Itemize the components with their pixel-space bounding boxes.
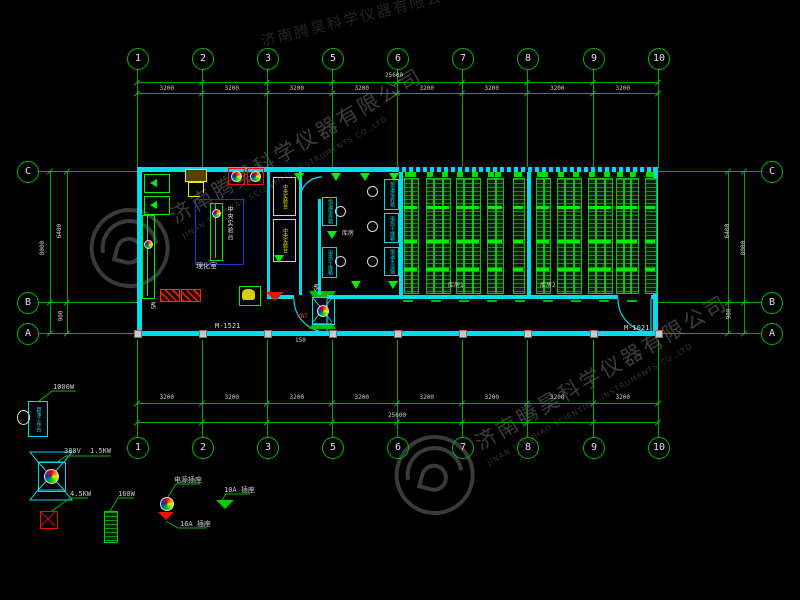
- column-marker: [590, 330, 598, 338]
- legend-label-power: 1.5KW: [90, 448, 111, 455]
- instrument-box: 恒温水浴锅: [384, 247, 399, 276]
- dim-text: 3200: [225, 395, 239, 401]
- rack-foot-icon: [488, 172, 494, 177]
- legend-16a-triangle-icon: [158, 512, 174, 520]
- light-cone-icon: [294, 173, 304, 181]
- yellow-sign: [185, 169, 207, 182]
- annotation-ws: WS: [149, 302, 155, 309]
- light-cone-icon: [389, 173, 399, 181]
- rack-divider: [426, 206, 449, 209]
- grid-column-bubble: 10: [648, 48, 670, 70]
- column-marker: [459, 330, 467, 338]
- grid-line-vertical: [137, 69, 138, 168]
- storage-rack: [588, 178, 596, 294]
- rack-divider: [645, 268, 655, 271]
- light-cone-icon: [331, 173, 341, 181]
- legend-ac-knob-icon: [17, 410, 30, 425]
- grid-row-bubble: C: [17, 161, 39, 183]
- grid-line-vertical: [397, 69, 398, 168]
- grid-column-bubble: 1: [127, 437, 149, 459]
- column-marker: [394, 330, 402, 338]
- dim-text: 6400: [57, 224, 63, 238]
- wall-interior-south: [651, 295, 653, 299]
- yellow-bench-label: 中央实验台: [282, 228, 287, 253]
- storage-rack: [574, 178, 582, 294]
- grid-line-vertical: [593, 69, 594, 168]
- rack-divider: [588, 206, 611, 209]
- rack-divider: [487, 240, 502, 243]
- green-cabinet: [144, 196, 170, 215]
- ceiling-light-icon: [367, 186, 378, 197]
- grid-column-bubble: 10: [648, 437, 670, 459]
- room-label-lab: 理化室: [196, 263, 217, 270]
- storage-rack: [443, 178, 451, 294]
- wall-interior-south: [327, 295, 618, 299]
- exhaust-fan-icon: [250, 171, 261, 182]
- grid-line-horizontal: [38, 171, 137, 172]
- grid-row-bubble: A: [17, 323, 39, 345]
- storage-rack: [456, 178, 464, 294]
- grid-line-vertical: [267, 69, 268, 168]
- grid-column-bubble: 3: [257, 48, 279, 70]
- door-label: M-1021: [624, 325, 649, 332]
- rack-foot-icon: [495, 172, 501, 177]
- dim-text: 3200: [420, 395, 434, 401]
- instrument-box-label: 电热干燥箱: [389, 216, 394, 241]
- annotation-xat: XAT: [297, 314, 308, 320]
- rack-divider: [513, 268, 523, 271]
- grid-line-vertical: [658, 69, 659, 168]
- rack-foot-icon: [573, 172, 579, 177]
- dim-text: 3200: [550, 86, 564, 92]
- room-label-storage2: 库房2: [540, 283, 556, 289]
- grid-line-horizontal: [658, 302, 761, 303]
- rack-divider: [536, 268, 549, 271]
- column-marker: [524, 330, 532, 338]
- rack-divider: [588, 268, 611, 271]
- column-marker: [134, 330, 142, 338]
- legend-label-rack: 160W: [118, 491, 135, 498]
- rack-foot-icon: [442, 172, 448, 177]
- grid-line-vertical: [202, 69, 203, 168]
- grid-line-horizontal: [658, 333, 761, 334]
- grid-row-bubble: B: [761, 292, 783, 314]
- dim-text: 3200: [160, 86, 174, 92]
- dim-text: 3200: [225, 86, 239, 92]
- yellow-bench-label: 中央实验台: [282, 184, 287, 209]
- instrument-box-label: 恒温培养箱: [389, 182, 394, 207]
- ceiling-light-icon: [335, 206, 346, 217]
- rack-foot-icon: [410, 172, 416, 177]
- grid-column-bubble: 8: [517, 48, 539, 70]
- storage-rack: [616, 178, 624, 294]
- storage-rack: [412, 178, 420, 294]
- dim-text: 900: [726, 309, 732, 320]
- legend-socket-icon: [160, 497, 174, 511]
- rack-divider: [404, 240, 417, 243]
- rack-divider: [536, 240, 549, 243]
- storage-rack: [496, 178, 505, 294]
- dim-text: 3200: [616, 86, 630, 92]
- storage-rack: [624, 178, 632, 294]
- rack-divider: [456, 206, 479, 209]
- legend-label-16a: 16A 插座: [180, 521, 211, 528]
- legend-label-ac: 1000W: [53, 384, 74, 391]
- grid-line-vertical: [462, 69, 463, 168]
- watermark-cn-text: 济南腾昊科学仪器有限公司: [469, 287, 733, 457]
- grid-column-bubble: 8: [517, 437, 539, 459]
- rack-foot-icon: [648, 172, 654, 177]
- bench-dial-icon: [212, 209, 221, 218]
- watermark-bottom-right: 济南腾昊科学仪器有限公司 JINAN TENGHAO SCIENTIFIC IN…: [380, 270, 749, 529]
- column-marker: [199, 330, 207, 338]
- rack-divider: [616, 268, 637, 271]
- storage-rack: [536, 178, 544, 294]
- dim-text: 8000: [40, 241, 46, 255]
- dim-text: 3200: [485, 86, 499, 92]
- wall-partition: [299, 172, 302, 295]
- storage-rack: [426, 178, 434, 294]
- legend-label-socket: 电源插座: [174, 477, 202, 484]
- bench-dial-icon: [144, 240, 153, 249]
- rack-divider: [557, 268, 580, 271]
- storage-rack: [404, 178, 412, 294]
- dim-line: [67, 171, 68, 333]
- storage-rack: [434, 178, 442, 294]
- rack-divider: [404, 206, 417, 209]
- storage-rack: [596, 178, 604, 294]
- legend-fan-icon: [44, 469, 59, 484]
- rack-divider: [616, 240, 637, 243]
- grid-column-bubble: 2: [192, 48, 214, 70]
- red-hatch-equipment: [181, 289, 201, 302]
- storage-rack: [513, 178, 525, 294]
- instrument-box-label: 恒温培养箱: [327, 199, 332, 224]
- grid-line-horizontal: [38, 302, 137, 303]
- rack-divider: [513, 240, 523, 243]
- storage-rack: [557, 178, 565, 294]
- grid-row-bubble: A: [761, 323, 783, 345]
- dim-text: 900: [58, 311, 64, 322]
- rack-divider: [404, 268, 417, 271]
- arrow-icon: [150, 201, 157, 209]
- dim-text-total: 25600: [385, 73, 403, 79]
- wall-bench: [142, 215, 155, 299]
- light-cone-icon: [274, 255, 284, 263]
- wall-bench-midline: [147, 216, 148, 296]
- rack-divider: [645, 206, 655, 209]
- storage-rack: [544, 178, 552, 294]
- dim-text: 3200: [550, 395, 564, 401]
- dim-text: 3200: [355, 86, 369, 92]
- grid-row-bubble: B: [17, 292, 39, 314]
- ceiling-light-icon: [367, 221, 378, 232]
- machine-body: [242, 289, 255, 300]
- legend-heater-box: [40, 511, 58, 529]
- rack-divider: [557, 240, 580, 243]
- dim-text: 3200: [355, 395, 369, 401]
- grid-column-bubble: 9: [583, 437, 605, 459]
- room-label-middle: 库房: [342, 231, 354, 237]
- rack-divider: [456, 240, 479, 243]
- storage-rack: [487, 178, 496, 294]
- bench-label: 中央实验台: [226, 206, 232, 241]
- rack-foot-icon: [630, 172, 636, 177]
- dim-text: 3200: [420, 86, 434, 92]
- legend-label-10a: 10A 插座: [224, 487, 255, 494]
- grid-column-bubble: 3: [257, 437, 279, 459]
- instrument-box-label: 电热干燥箱: [327, 250, 332, 275]
- dim-line: [50, 171, 51, 333]
- grid-column-bubble: 6: [387, 437, 409, 459]
- rack-foot-icon: [516, 172, 522, 177]
- annotation-ws: WS: [312, 284, 318, 291]
- rack-divider: [557, 206, 580, 209]
- wall-partition: [527, 172, 531, 295]
- dim-text: 3200: [160, 395, 174, 401]
- grid-column-bubble: 5: [322, 437, 344, 459]
- storage-rack: [605, 178, 613, 294]
- legend-ac-text: 超净工作台: [36, 407, 41, 432]
- grid-line-horizontal: [658, 171, 761, 172]
- grid-row-bubble: C: [761, 161, 783, 183]
- rack-foot-icon: [542, 172, 548, 177]
- column-marker: [655, 330, 663, 338]
- column-marker: [329, 330, 337, 338]
- watermark-top-text: 济南腾昊科学仪器有限公司: [258, 0, 461, 51]
- door-label: M-1521: [215, 323, 240, 330]
- rack-foot-icon: [604, 172, 610, 177]
- rack-divider: [645, 240, 655, 243]
- rack-divider: [588, 240, 611, 243]
- light-cone-icon: [388, 281, 398, 289]
- rack-foot-icon: [427, 172, 433, 177]
- light-cone-icon: [351, 281, 361, 289]
- instrument-box: 恒温培养箱: [384, 179, 399, 210]
- grid-column-bubble: 7: [452, 437, 474, 459]
- grid-line-vertical: [332, 69, 333, 168]
- storage-rack: [631, 178, 639, 294]
- red-triangle-icon: [266, 292, 284, 301]
- grid-column-bubble: 1: [127, 48, 149, 70]
- instrument-box: 电热干燥箱: [384, 213, 399, 243]
- wall-partition: [399, 172, 403, 295]
- dim-text: 3200: [616, 395, 630, 401]
- rack-divider: [616, 206, 637, 209]
- column-marker: [264, 330, 272, 338]
- arrow-icon: [150, 179, 157, 187]
- dim-text: 3200: [290, 395, 304, 401]
- grid-line-horizontal: [38, 333, 137, 334]
- rack-foot-icon: [617, 172, 623, 177]
- grid-line-vertical: [527, 69, 528, 168]
- exhaust-fan-icon: [231, 171, 242, 182]
- red-hatch-equipment: [160, 289, 180, 302]
- rack-divider: [513, 206, 523, 209]
- grid-column-bubble: 7: [452, 48, 474, 70]
- rack-divider: [456, 268, 479, 271]
- rack-foot-icon: [457, 172, 463, 177]
- legend-ac-box: 超净工作台: [28, 401, 48, 437]
- room-label-storage1: 库房1: [448, 283, 464, 289]
- wall-partition: [318, 199, 321, 295]
- fan-unit-icon: [317, 305, 329, 317]
- storage-rack: [473, 178, 481, 294]
- storage-rack: [645, 178, 657, 294]
- dim-text: 3200: [290, 86, 304, 92]
- dim-text: 6400: [725, 224, 731, 238]
- cad-floor-plan: 济南腾昊科学仪器有限公司 JINAN TENGHAO SCIENTIFIC IN…: [0, 0, 800, 600]
- light-cone-icon: [327, 231, 337, 239]
- rack-foot-icon: [472, 172, 478, 177]
- wall-partition: [267, 172, 270, 295]
- grid-column-bubble: 6: [387, 48, 409, 70]
- dim-text: 3200: [485, 395, 499, 401]
- legend-label-heater: 4.5KW: [70, 491, 91, 498]
- grid-column-bubble: 2: [192, 437, 214, 459]
- yellow-bench: 中央实验台: [273, 177, 296, 216]
- rack-foot-icon: [589, 172, 595, 177]
- rack-divider: [426, 240, 449, 243]
- grid-column-bubble: 9: [583, 48, 605, 70]
- green-cabinet: [144, 174, 170, 193]
- ceiling-light-icon: [335, 256, 346, 267]
- rack-divider: [426, 268, 449, 271]
- storage-rack: [464, 178, 472, 294]
- dim-text: 8000: [741, 241, 747, 255]
- legend-10a-triangle-icon: [216, 500, 234, 509]
- wall-dash-line: [403, 300, 653, 302]
- legend-rack: [104, 511, 118, 543]
- ceiling-light-icon: [367, 256, 378, 267]
- light-cone-icon: [360, 173, 370, 181]
- rack-divider: [487, 206, 502, 209]
- storage-rack: [565, 178, 573, 294]
- rack-foot-icon: [558, 172, 564, 177]
- rack-divider: [487, 268, 502, 271]
- annotation-150: 150: [295, 338, 306, 344]
- rack-divider: [536, 206, 549, 209]
- instrument-box-label: 恒温水浴锅: [389, 249, 394, 274]
- grid-column-bubble: 5: [322, 48, 344, 70]
- legend-label-volt: 380V: [64, 448, 81, 455]
- dim-text-total: 25600: [388, 413, 406, 419]
